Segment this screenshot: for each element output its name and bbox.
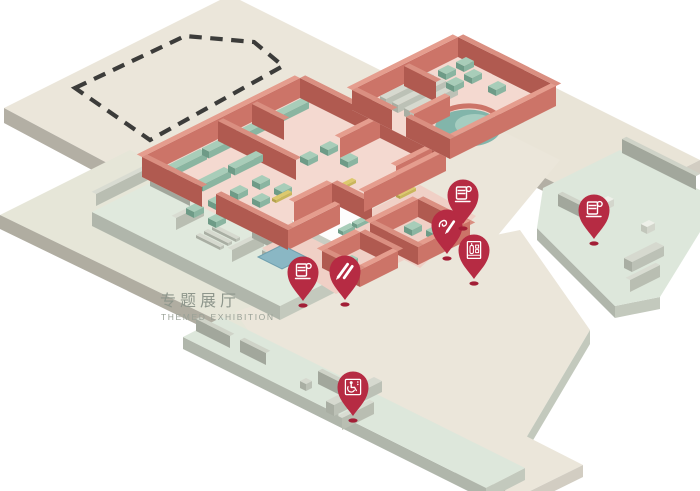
isometric-map-canvas: 专题展厅 THEMED EXHIBITION bbox=[0, 0, 700, 491]
museum-floor-map: 专题展厅 THEMED EXHIBITION bbox=[0, 0, 700, 491]
pin-shadow bbox=[348, 418, 357, 422]
pin-shadow bbox=[340, 302, 349, 306]
pin-shadow bbox=[458, 226, 467, 230]
pin-shadow bbox=[442, 256, 451, 260]
themed-exhibition-label-en: THEMED EXHIBITION bbox=[161, 312, 275, 322]
pin-shadow bbox=[589, 241, 598, 245]
pin-shadow bbox=[298, 303, 307, 307]
themed-exhibition-label-cn: 专题展厅 bbox=[160, 291, 240, 310]
pin-shadow bbox=[469, 281, 478, 285]
